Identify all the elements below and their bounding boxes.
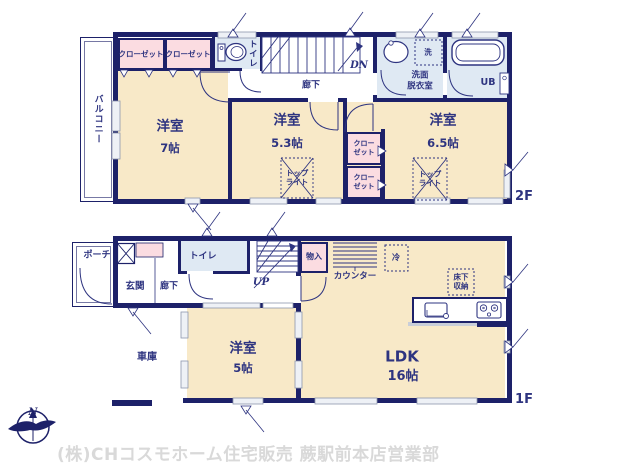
stairs-dn-label: DN <box>350 60 368 73</box>
compass-north-label: N <box>28 407 37 420</box>
closet-left-label: クローゼット <box>119 49 164 58</box>
washroom-label: 洗面 脱衣室 <box>407 70 433 91</box>
refrigerator-label: 冷 <box>392 253 400 263</box>
counter-label: カウンター <box>334 272 377 283</box>
skylight-b-label: トップ ライト <box>286 169 309 188</box>
floor1-tag: 1F <box>515 392 533 408</box>
shower-unit-icon <box>500 73 509 94</box>
closet-mid-bottom-label: クロー ゼット <box>354 173 375 191</box>
kitchen-icon <box>408 298 507 326</box>
watermark-text: (株)CHコスモホーム住宅販売 蕨駅前本店営業部 <box>57 440 440 465</box>
skylight-c-label: トップ ライト <box>419 170 442 189</box>
toilet-2f-label: トイレ <box>247 40 258 69</box>
porch-label: ポーチ <box>83 250 110 261</box>
bathtub-icon <box>452 40 504 65</box>
hallway-2f-label: 廊下 <box>302 80 320 91</box>
floor2-tag: 2F <box>515 189 533 205</box>
floorplan: バルコニー クローゼット クローゼット トイレ 廊下 DN 洗面 脱衣室 洗 U… <box>0 0 620 465</box>
room-a-size: 7帖 <box>160 141 180 155</box>
hallway-1f-label: 廊下 <box>160 281 178 292</box>
closet-mid-top-label: クロー ゼット <box>354 139 375 157</box>
toilet-icon-2f <box>218 44 246 62</box>
storage-label: 物入 <box>306 252 322 262</box>
bath-ub-label: UB <box>481 77 496 89</box>
stairs-up-label: UP <box>253 277 269 290</box>
stove-icon <box>477 302 501 318</box>
closet-right-label: クローゼット <box>166 49 211 58</box>
room-c-name: 洋室 <box>430 113 457 130</box>
stairs-2f-icon <box>262 37 363 73</box>
ldk-name: LDK <box>385 348 419 367</box>
room-c-size: 6.5帖 <box>427 136 459 150</box>
room-b-name: 洋室 <box>274 113 301 130</box>
ldk-size: 16帖 <box>387 369 418 385</box>
toilet-1f-label: トイレ <box>189 251 216 262</box>
room-b-size: 5.3帖 <box>271 136 303 150</box>
room-d-name: 洋室 <box>230 341 257 358</box>
balcony-label: バルコニー <box>91 94 102 144</box>
room-d-size: 5帖 <box>233 361 253 375</box>
sink-icon <box>384 41 408 63</box>
room-a-name: 洋室 <box>157 119 184 136</box>
garage-label: 車庫 <box>137 352 157 365</box>
entrance-label: 玄関 <box>125 281 144 293</box>
laundry-label: 洗 <box>424 47 432 56</box>
underfloor-storage-label: 床下 収納 <box>454 273 469 292</box>
